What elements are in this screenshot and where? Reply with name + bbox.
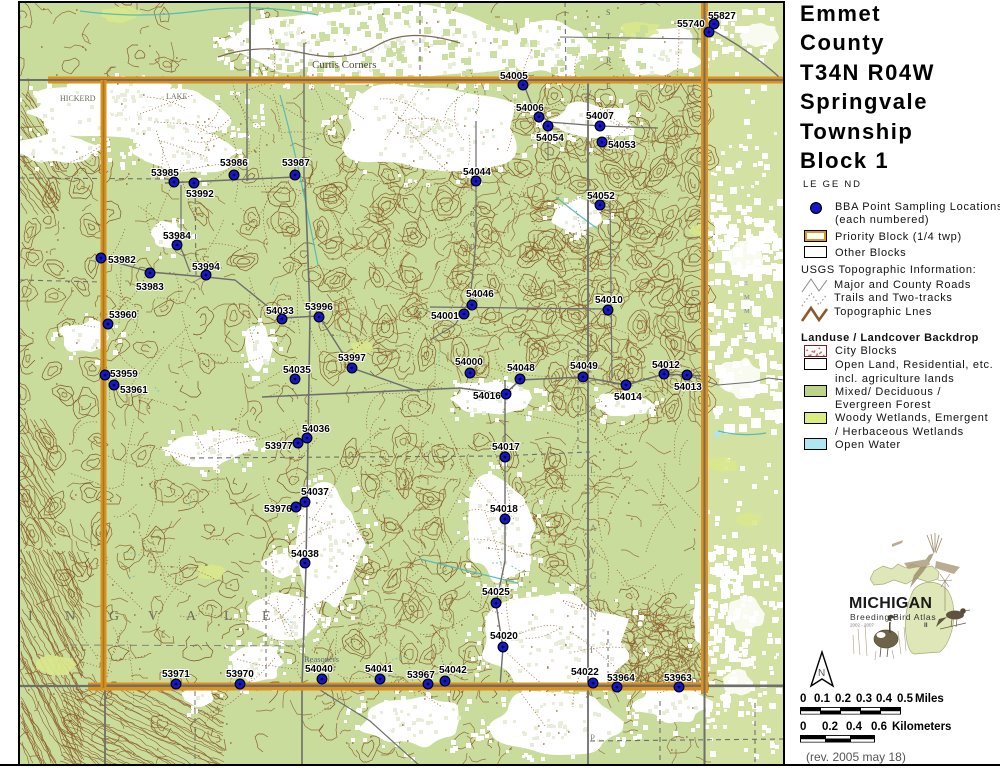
svg-text:53986: 53986 — [220, 158, 248, 169]
svg-text:S: S — [606, 8, 610, 17]
svg-text:N: N — [818, 668, 825, 679]
svg-text:2002 - 2007: 2002 - 2007 — [850, 623, 875, 628]
svg-text:A: A — [186, 609, 197, 624]
svg-text:53961: 53961 — [120, 385, 148, 396]
svg-text:T: T — [744, 336, 748, 343]
svg-text:A: A — [470, 232, 475, 240]
svg-text:54016: 54016 — [473, 391, 501, 402]
svg-text:D: D — [470, 243, 475, 251]
svg-text:L: L — [590, 465, 596, 475]
svg-text:E: E — [590, 408, 596, 418]
svg-text:E: E — [744, 322, 748, 329]
svg-text:53964: 53964 — [607, 673, 635, 684]
svg-text:54022: 54022 — [571, 667, 599, 678]
svg-text:T: T — [606, 32, 611, 41]
svg-text:N: N — [590, 609, 597, 619]
svg-text:E: E — [262, 609, 271, 624]
svg-text:E: E — [606, 82, 611, 91]
svg-text:II: II — [924, 622, 928, 629]
svg-text:54049: 54049 — [570, 361, 598, 372]
svg-text:P: P — [590, 733, 595, 743]
svg-text:A: A — [590, 523, 597, 533]
svg-text:54041: 54041 — [365, 664, 393, 675]
svg-text:53970: 53970 — [226, 669, 254, 680]
svg-text:54046: 54046 — [466, 289, 494, 300]
svg-text:54000: 54000 — [455, 357, 483, 368]
svg-text:I: I — [590, 645, 593, 655]
svg-text:M: M — [744, 294, 750, 301]
svg-text:54010: 54010 — [595, 295, 623, 306]
svg-text:54054: 54054 — [536, 133, 564, 144]
svg-text:N: N — [65, 609, 75, 624]
svg-text:54007: 54007 — [586, 111, 614, 122]
svg-text:54001: 54001 — [431, 311, 459, 322]
svg-text:Breeding Bird Atlas: Breeding Bird Atlas — [850, 612, 936, 622]
svg-text:V: V — [148, 609, 158, 624]
svg-text:HICKERD: HICKERD — [60, 94, 96, 103]
svg-text:R: R — [606, 56, 612, 65]
svg-text:54042: 54042 — [439, 665, 467, 676]
svg-text:54048: 54048 — [507, 363, 535, 374]
svg-text:53983: 53983 — [136, 282, 164, 293]
svg-text:E: E — [744, 280, 748, 287]
svg-text:53959: 53959 — [110, 369, 138, 380]
svg-text:54014: 54014 — [614, 392, 642, 403]
svg-text:53982: 53982 — [108, 255, 136, 266]
svg-text:54053: 54053 — [608, 140, 636, 151]
svg-text:54017: 54017 — [492, 442, 520, 453]
svg-text:54013: 54013 — [674, 382, 702, 393]
svg-text:G: G — [109, 609, 119, 624]
svg-text:MICHIGAN: MICHIGAN — [849, 595, 932, 612]
svg-text:53977: 53977 — [265, 441, 293, 452]
svg-text:Curtis Corners: Curtis Corners — [312, 59, 376, 71]
svg-text:53971: 53971 — [162, 669, 190, 680]
svg-text:I: I — [28, 609, 33, 624]
svg-text:53967: 53967 — [407, 670, 435, 681]
svg-text:53997: 53997 — [338, 353, 366, 364]
svg-text:L: L — [224, 609, 233, 624]
svg-text:V: V — [590, 546, 597, 556]
svg-text:55740: 55740 — [677, 19, 705, 30]
svg-text:M: M — [744, 308, 750, 315]
svg-text:54018: 54018 — [490, 504, 518, 515]
svg-text:53996: 53996 — [305, 302, 333, 313]
svg-text:53960: 53960 — [109, 310, 137, 321]
svg-text:53992: 53992 — [186, 189, 214, 200]
svg-text:54037: 54037 — [301, 487, 329, 498]
svg-text:53976: 53976 — [264, 504, 292, 515]
svg-text:54025: 54025 — [482, 587, 510, 598]
svg-text:54040: 54040 — [305, 664, 333, 675]
svg-text:G: G — [590, 571, 597, 581]
svg-text:R: R — [470, 210, 475, 218]
svg-text:54020: 54020 — [490, 631, 518, 642]
svg-text:LAKE: LAKE — [166, 92, 187, 101]
svg-text:53987: 53987 — [282, 158, 310, 169]
svg-text:O: O — [470, 221, 475, 229]
